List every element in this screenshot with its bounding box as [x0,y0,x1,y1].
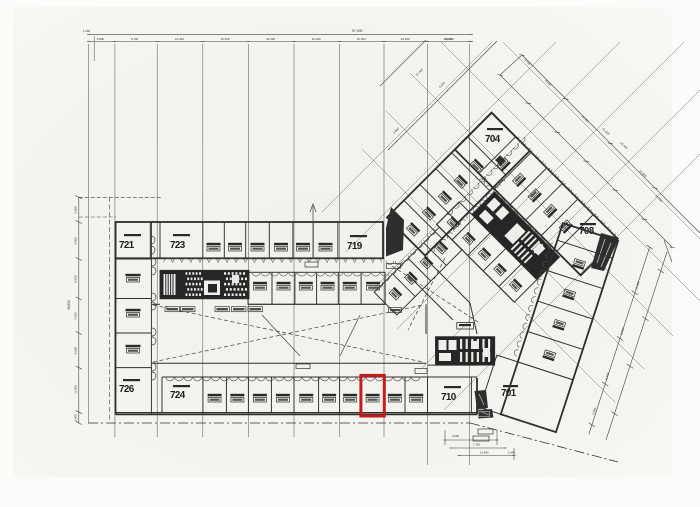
svg-text:5,600: 5,600 [97,37,105,41]
svg-text:726: 726 [119,384,135,395]
svg-text:36,600: 36,600 [67,300,71,310]
svg-text:10,400: 10,400 [445,37,454,41]
svg-text:1,200: 1,200 [83,29,90,33]
svg-text:4,800: 4,800 [74,237,78,245]
svg-text:5,000: 5,000 [74,206,78,214]
svg-text:710: 710 [441,392,457,403]
svg-text:10,400: 10,400 [221,37,230,41]
svg-text:721: 721 [119,240,135,251]
svg-text:7,300: 7,300 [473,443,480,447]
svg-text:719: 719 [347,241,363,252]
svg-text:6,400: 6,400 [74,312,78,320]
svg-text:97,000: 97,000 [352,29,362,33]
svg-text:724: 724 [170,390,186,401]
svg-text:4,000: 4,000 [452,434,459,438]
svg-text:9,700: 9,700 [131,37,139,41]
svg-text:1,600: 1,600 [508,451,515,455]
svg-text:8,300: 8,300 [74,275,78,283]
svg-text:10,400: 10,400 [312,37,321,41]
svg-text:8,600: 8,600 [74,347,78,355]
svg-text:701: 701 [501,388,517,399]
svg-text:11,600: 11,600 [74,385,78,394]
svg-text:13,400: 13,400 [480,451,489,455]
svg-text:704: 704 [485,134,501,145]
svg-text:10,400: 10,400 [266,37,275,41]
svg-text:723: 723 [170,240,186,251]
svg-text:10,400: 10,400 [357,37,366,41]
svg-text:10,400: 10,400 [175,37,184,41]
svg-text:10,400: 10,400 [401,37,410,41]
svg-text:1,400: 1,400 [74,414,78,422]
